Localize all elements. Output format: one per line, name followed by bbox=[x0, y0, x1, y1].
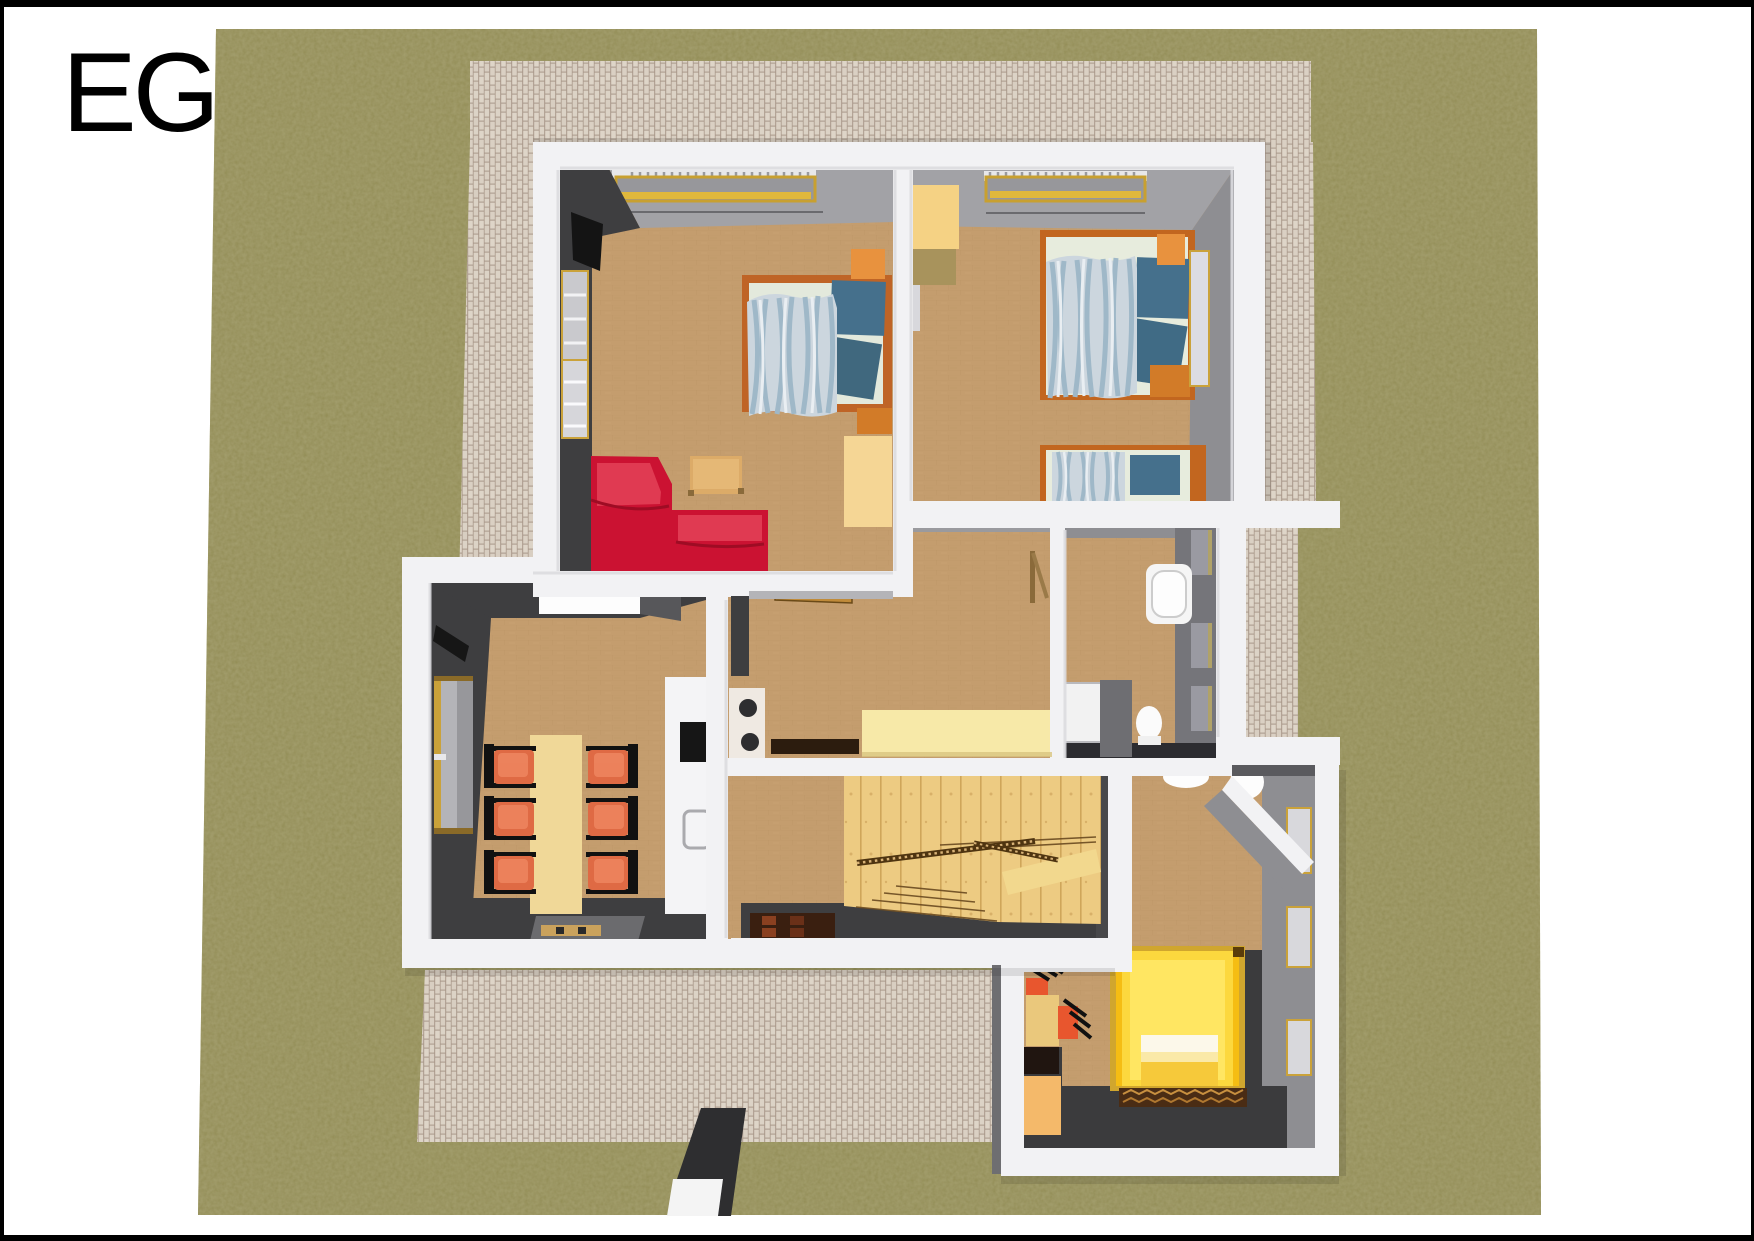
svg-text:EG: EG bbox=[62, 30, 216, 155]
